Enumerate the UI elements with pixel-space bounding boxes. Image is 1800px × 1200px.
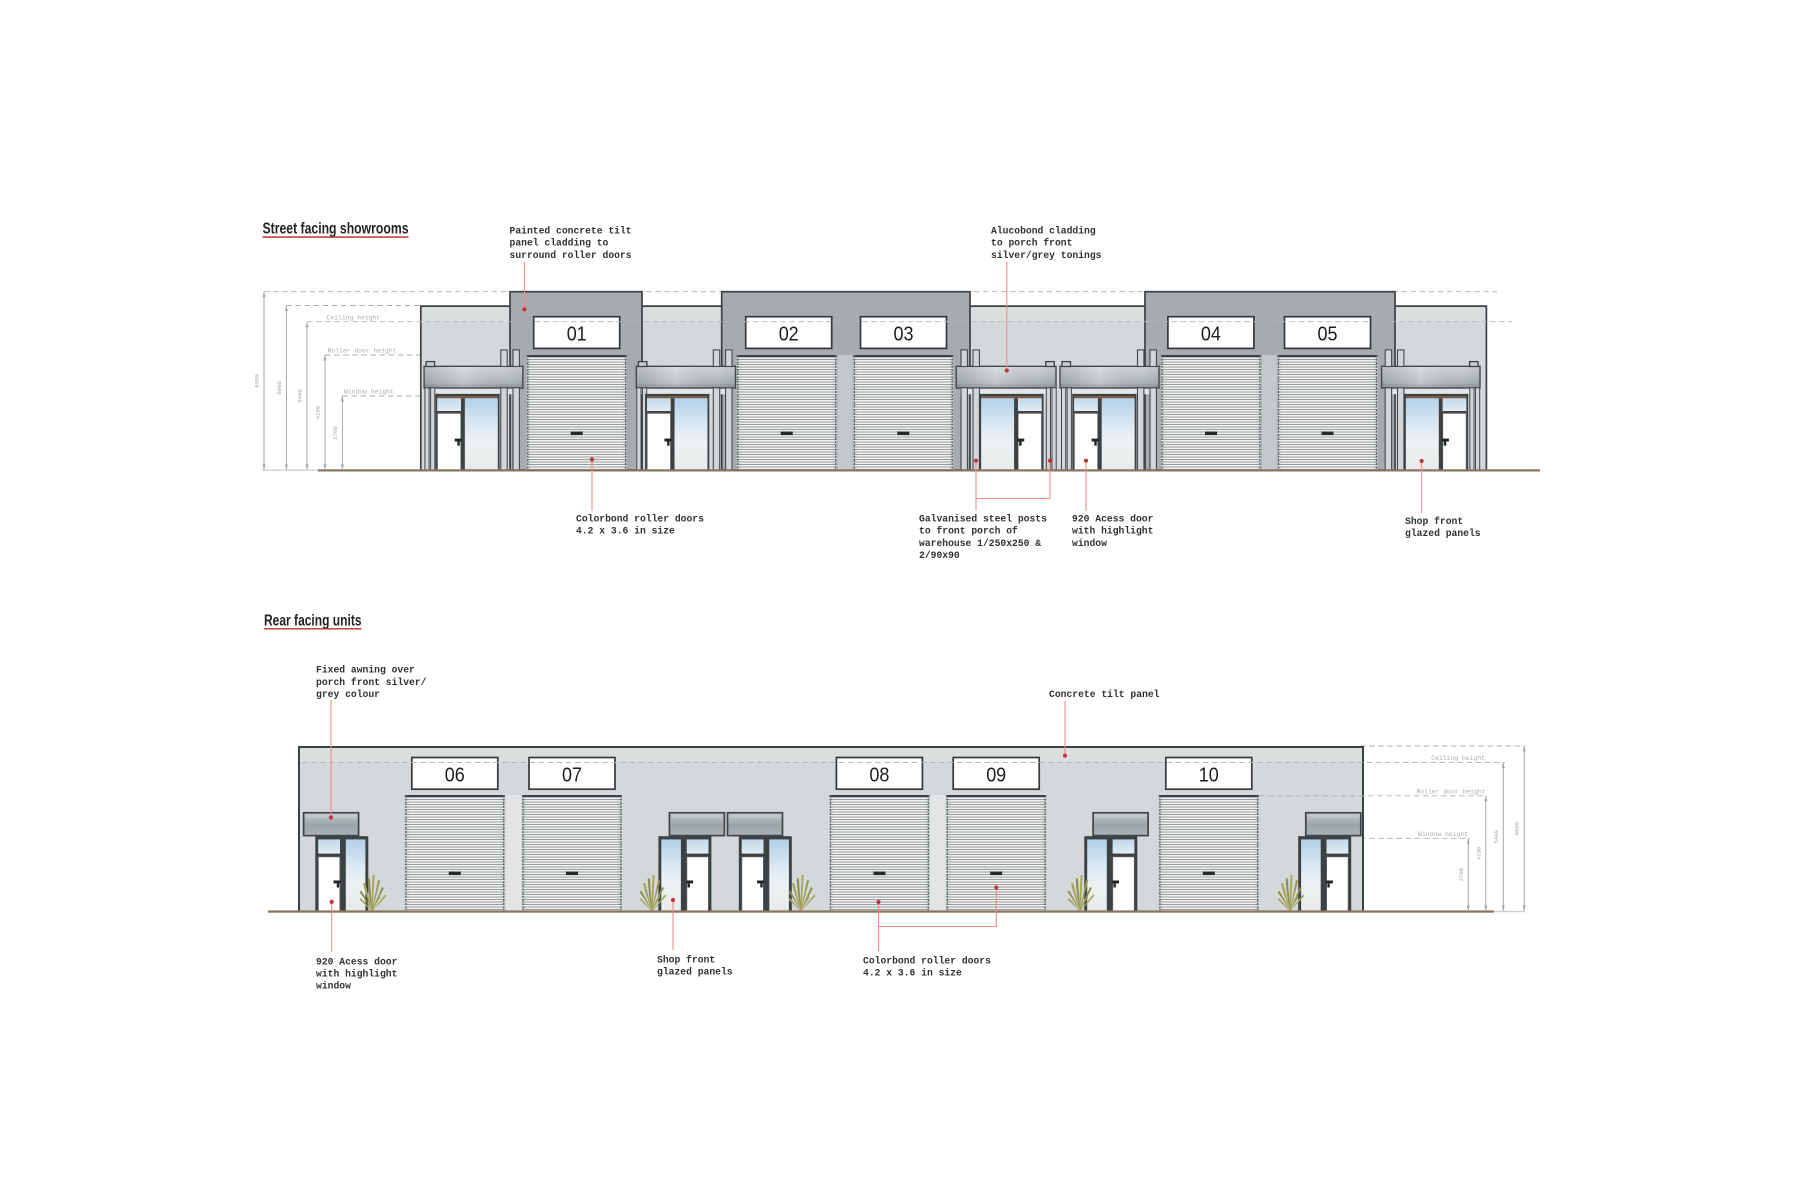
svg-text:04: 04 [1201,323,1221,346]
svg-text:grey colour: grey colour [316,689,380,700]
svg-text:920 Acess door: 920 Acess door [1072,514,1154,525]
svg-text:panel cladding to: panel cladding to [510,238,609,249]
svg-text:Colorbond roller doors: Colorbond roller doors [863,955,991,966]
svg-text:6000: 6000 [276,380,283,394]
svg-text:Window height: Window height [1418,831,1468,838]
svg-text:Window height: Window height [344,389,394,396]
svg-text:Street facing showrooms: Street facing showrooms [263,220,409,237]
svg-text:920 Acess door: 920 Acess door [316,956,398,967]
svg-text:window: window [1072,538,1107,549]
svg-text:Rear facing units: Rear facing units [264,613,362,630]
svg-text:2/90x90: 2/90x90 [919,550,960,561]
svg-text:silver/grey tonings: silver/grey tonings [991,250,1102,261]
svg-text:glazed panels: glazed panels [657,967,733,978]
svg-text:5400: 5400 [1493,829,1500,843]
svg-text:Colorbond roller doors: Colorbond roller doors [576,514,704,525]
svg-text:2700: 2700 [332,426,339,440]
svg-text:porch front silver/: porch front silver/ [316,677,427,688]
svg-text:4200: 4200 [315,405,322,419]
svg-text:05: 05 [1318,323,1338,346]
svg-text:Shop front: Shop front [657,954,715,965]
svg-text:surround roller doors: surround roller doors [510,250,632,261]
svg-text:with highlight: with highlight [316,969,397,980]
svg-text:with highlight: with highlight [1072,526,1153,537]
svg-text:to front porch of: to front porch of [919,526,1018,537]
svg-text:Galvanised steel posts: Galvanised steel posts [919,514,1047,525]
svg-text:Concrete tilt panel: Concrete tilt panel [1049,689,1160,700]
svg-text:to porch front: to porch front [991,238,1072,249]
svg-text:Fixed awning over: Fixed awning over [316,665,415,676]
svg-text:glazed panels: glazed panels [1405,528,1481,539]
svg-text:Roller door height: Roller door height [328,348,397,355]
svg-text:07: 07 [562,763,582,786]
svg-text:09: 09 [986,763,1006,786]
svg-text:Shop front: Shop front [1405,516,1463,527]
svg-text:01: 01 [567,323,587,346]
svg-text:6000: 6000 [1514,821,1521,835]
svg-text:4.2 x 3.6 in size: 4.2 x 3.6 in size [863,968,962,979]
svg-text:Roller door height: Roller door height [1416,789,1485,796]
svg-text:warehouse 1/250x250 &: warehouse 1/250x250 & [919,538,1041,549]
svg-text:Painted concrete tilt: Painted concrete tilt [510,226,632,237]
svg-text:5400: 5400 [297,389,304,403]
svg-text:Ceiling height: Ceiling height [1431,755,1485,762]
svg-text:Ceiling height: Ceiling height [327,315,381,322]
svg-text:02: 02 [779,323,799,346]
svg-text:4200: 4200 [1475,846,1482,860]
svg-text:10: 10 [1199,763,1219,786]
svg-text:06: 06 [445,763,465,786]
svg-text:2700: 2700 [1458,867,1465,881]
svg-text:6500: 6500 [254,374,261,388]
svg-text:03: 03 [894,323,914,346]
svg-text:08: 08 [869,763,889,786]
svg-text:window: window [316,981,351,992]
svg-text:4.2 x 3.6 in size: 4.2 x 3.6 in size [576,526,675,537]
svg-text:Alucobond cladding: Alucobond cladding [991,226,1096,237]
